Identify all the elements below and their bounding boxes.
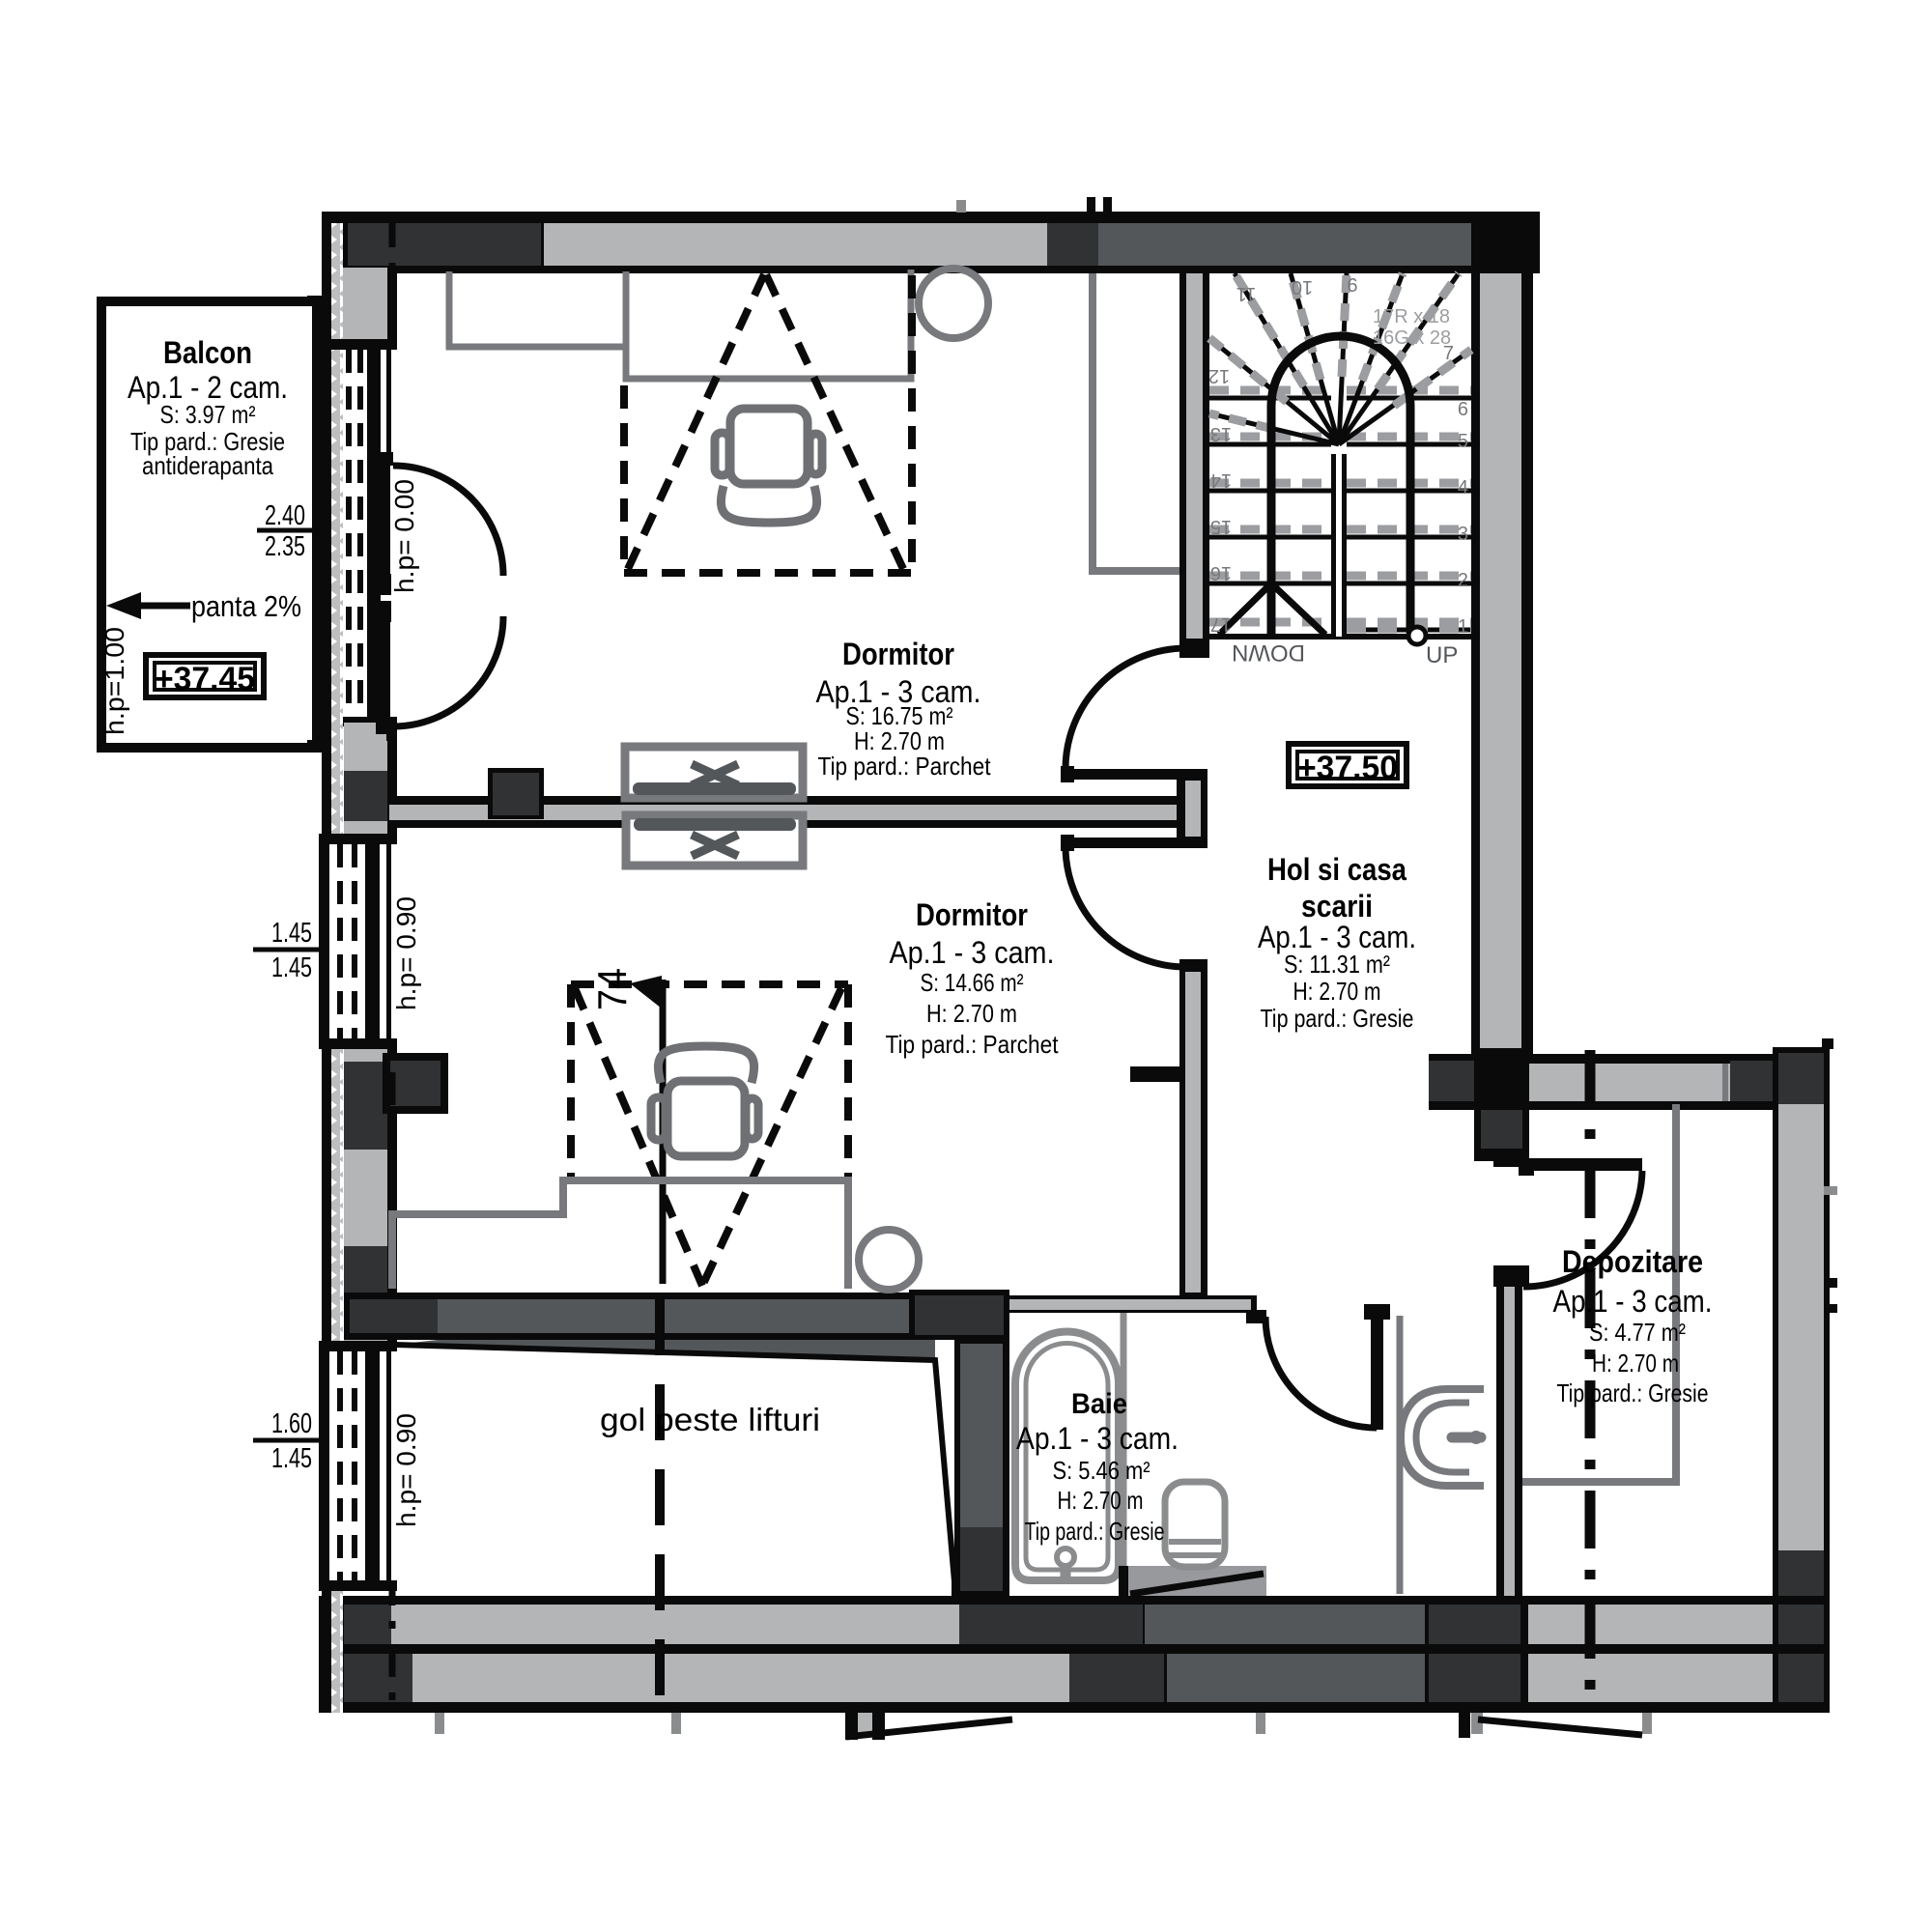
- svg-text:Tip pard.: Parchet: Tip pard.: Parchet: [818, 752, 992, 781]
- svg-text:Hol si casa: Hol si casa: [1267, 852, 1406, 887]
- svg-text:panta 2%: panta 2%: [191, 589, 301, 623]
- svg-text:Baie: Baie: [1071, 1388, 1127, 1420]
- svg-text:h.p= 0.90: h.p= 0.90: [391, 896, 421, 1010]
- svg-text:1.60: 1.60: [271, 1408, 312, 1439]
- svg-text:DOWN: DOWN: [1232, 639, 1305, 666]
- svg-text:S: 3.97 m²: S: 3.97 m²: [160, 400, 256, 429]
- svg-text:Depozitare: Depozitare: [1562, 1244, 1703, 1279]
- svg-text:2.40: 2.40: [265, 500, 305, 531]
- svg-text:H: 2.70 m: H: 2.70 m: [1058, 1486, 1144, 1515]
- svg-text:17R x 18: 17R x 18: [1373, 306, 1450, 327]
- svg-text:h.p= 0.90: h.p= 0.90: [391, 1413, 421, 1527]
- svg-text:antiderapanta: antiderapanta: [142, 451, 273, 480]
- svg-text:6: 6: [1458, 399, 1468, 420]
- svg-text:Tip pard.: Gresie: Tip pard.: Gresie: [1261, 1004, 1414, 1033]
- svg-text:17: 17: [1210, 613, 1232, 635]
- svg-text:1.45: 1.45: [271, 952, 312, 983]
- svg-text:16G x 28: 16G x 28: [1373, 327, 1451, 349]
- svg-text:Balcon: Balcon: [163, 335, 252, 370]
- svg-text:gol peste lifturi: gol peste lifturi: [600, 1402, 820, 1437]
- svg-text:S: 11.31 m²: S: 11.31 m²: [1284, 950, 1390, 979]
- svg-text:Ap.1 - 3 cam.: Ap.1 - 3 cam.: [890, 935, 1055, 970]
- svg-text:12: 12: [1208, 365, 1230, 386]
- svg-text:scarii: scarii: [1301, 889, 1373, 923]
- svg-text:11: 11: [1236, 283, 1257, 304]
- svg-text:H: 2.70 m: H: 2.70 m: [926, 999, 1017, 1028]
- svg-text:Tip pard.: Gresie: Tip pard.: Gresie: [1025, 1517, 1165, 1546]
- svg-text:UP: UP: [1426, 642, 1458, 668]
- svg-text:Dormitor: Dormitor: [842, 637, 954, 671]
- svg-text:Tip pard.: Parchet: Tip pard.: Parchet: [886, 1030, 1060, 1059]
- svg-text:15: 15: [1210, 516, 1232, 537]
- svg-text:16: 16: [1210, 562, 1232, 583]
- svg-text:Tip pard.: Gresie: Tip pard.: Gresie: [1557, 1378, 1709, 1407]
- svg-text:2: 2: [1458, 570, 1468, 591]
- svg-text:5: 5: [1458, 431, 1468, 452]
- svg-text:H: 2.70 m: H: 2.70 m: [1592, 1349, 1679, 1378]
- svg-text:10: 10: [1292, 276, 1313, 298]
- svg-text:Ap.1 - 3 cam.: Ap.1 - 3 cam.: [1553, 1284, 1713, 1319]
- svg-text:2.35: 2.35: [265, 531, 305, 562]
- svg-text:4: 4: [1458, 477, 1468, 498]
- svg-text:9: 9: [1347, 273, 1357, 295]
- svg-text:13: 13: [1210, 423, 1232, 444]
- svg-text:Dormitor: Dormitor: [916, 897, 1028, 932]
- svg-text:14: 14: [1210, 469, 1232, 491]
- svg-text:H: 2.70 m: H: 2.70 m: [1293, 977, 1381, 1006]
- svg-text:3: 3: [1458, 524, 1468, 545]
- svg-text:h.p=1.00: h.p=1.00: [99, 627, 129, 735]
- svg-text:7: 7: [1443, 343, 1454, 364]
- svg-text:Ap.1 - 3 cam.: Ap.1 - 3 cam.: [1016, 1421, 1179, 1456]
- svg-text:+37.50: +37.50: [1297, 750, 1398, 786]
- svg-text:1: 1: [1458, 616, 1468, 638]
- svg-text:74: 74: [589, 968, 635, 1010]
- svg-text:+37.45: +37.45: [155, 661, 255, 697]
- svg-text:S: 4.77 m²: S: 4.77 m²: [1589, 1318, 1686, 1347]
- svg-text:h.p= 0.00: h.p= 0.00: [389, 479, 419, 593]
- svg-text:S: 14.66 m²: S: 14.66 m²: [921, 968, 1024, 997]
- svg-text:1.45: 1.45: [271, 1443, 312, 1474]
- svg-text:S: 5.46 m²: S: 5.46 m²: [1053, 1456, 1151, 1485]
- svg-text:1.45: 1.45: [271, 918, 312, 949]
